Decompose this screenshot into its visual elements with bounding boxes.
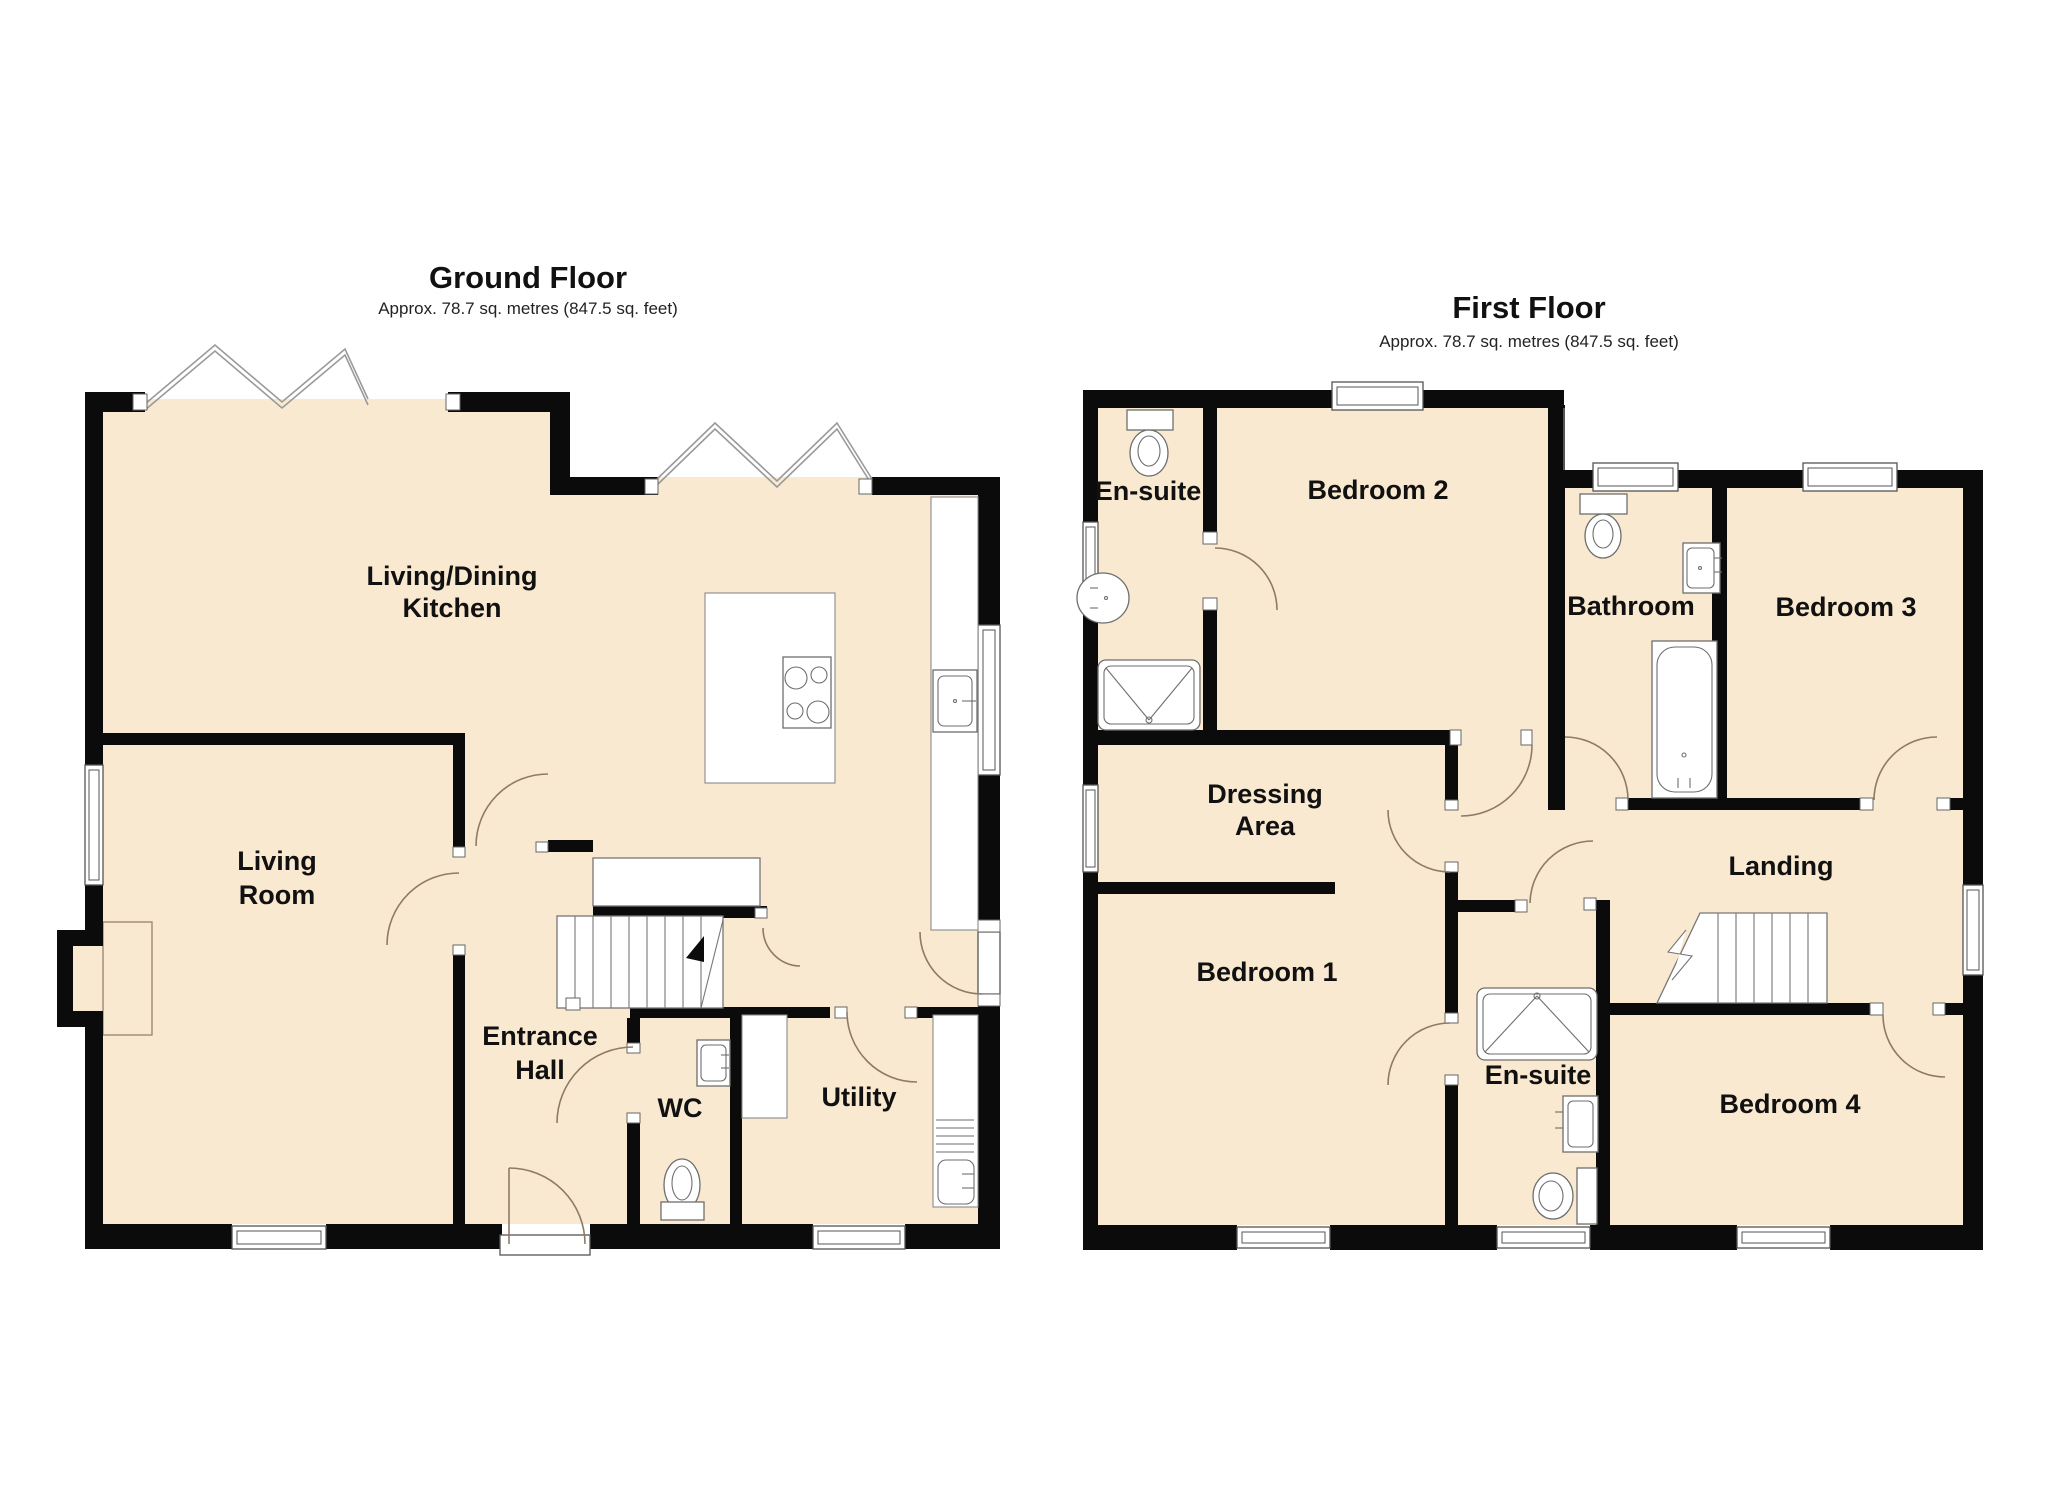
- room-label-living: Living: [237, 846, 317, 876]
- sink-icon: [697, 1040, 730, 1086]
- sink-icon: [1683, 543, 1722, 593]
- room-label-bedroom2: Bedroom 2: [1307, 475, 1448, 505]
- room-label-room: Room: [239, 880, 316, 910]
- room-label-bedroom1: Bedroom 1: [1196, 957, 1337, 987]
- window-icon: [85, 765, 103, 885]
- ground-floor-subtitle: Approx. 78.7 sq. metres (847.5 sq. feet): [378, 299, 678, 318]
- back-door-threshold: [978, 932, 1000, 994]
- window-icon: [1332, 382, 1423, 410]
- appliance-icon: [742, 1015, 787, 1118]
- room-label-kitchen: Kitchen: [402, 593, 501, 623]
- sink-icon: [933, 670, 977, 732]
- window-icon: [1593, 463, 1678, 491]
- room-label-wc: WC: [658, 1093, 703, 1123]
- ground-floor-title: Ground Floor: [429, 260, 627, 295]
- first-floor-title: First Floor: [1452, 290, 1605, 325]
- window-icon: [1497, 1227, 1590, 1248]
- window-icon: [813, 1226, 905, 1249]
- room-label-entrance: Entrance: [482, 1021, 598, 1051]
- room-label-ensuite-bottom: En-suite: [1485, 1060, 1592, 1090]
- front-door-threshold: [500, 1235, 590, 1255]
- room-label-dressing: Dressing: [1207, 779, 1323, 809]
- room-label-hall: Hall: [515, 1055, 565, 1085]
- window-icon: [232, 1226, 326, 1249]
- floorplan-page: Ground Floor Approx. 78.7 sq. metres (84…: [0, 0, 2048, 1489]
- ground-floor-plan: Ground Floor Approx. 78.7 sq. metres (84…: [57, 260, 1000, 1255]
- shower-icon: [1477, 988, 1597, 1060]
- floorplan-drawing: Ground Floor Approx. 78.7 sq. metres (84…: [0, 0, 2048, 1489]
- room-label-utility: Utility: [821, 1082, 896, 1112]
- sink-icon: [1077, 573, 1129, 623]
- shower-icon: [1098, 660, 1200, 730]
- window-icon: [1237, 1227, 1330, 1248]
- room-label-bathroom: Bathroom: [1567, 591, 1695, 621]
- first-floor-subtitle: Approx. 78.7 sq. metres (847.5 sq. feet): [1379, 332, 1679, 351]
- kitchen-counter: [931, 497, 978, 930]
- room-label-bedroom4: Bedroom 4: [1719, 1089, 1860, 1119]
- room-label-living-dining: Living/Dining: [367, 561, 538, 591]
- window-icon: [1737, 1227, 1830, 1248]
- room-label-area: Area: [1235, 811, 1296, 841]
- window-icon: [1963, 885, 1983, 975]
- bathtub-icon: [1652, 641, 1717, 798]
- room-label-ensuite-top: En-suite: [1095, 476, 1202, 506]
- room-label-landing: Landing: [1729, 851, 1834, 881]
- first-floor-plan: First Floor Approx. 78.7 sq. metres (847…: [1077, 290, 1983, 1250]
- room-label-bedroom3: Bedroom 3: [1775, 592, 1916, 622]
- window-icon: [1803, 463, 1897, 491]
- window-icon: [978, 625, 1000, 775]
- window-icon: [1083, 785, 1098, 872]
- kitchen-island: [705, 593, 835, 783]
